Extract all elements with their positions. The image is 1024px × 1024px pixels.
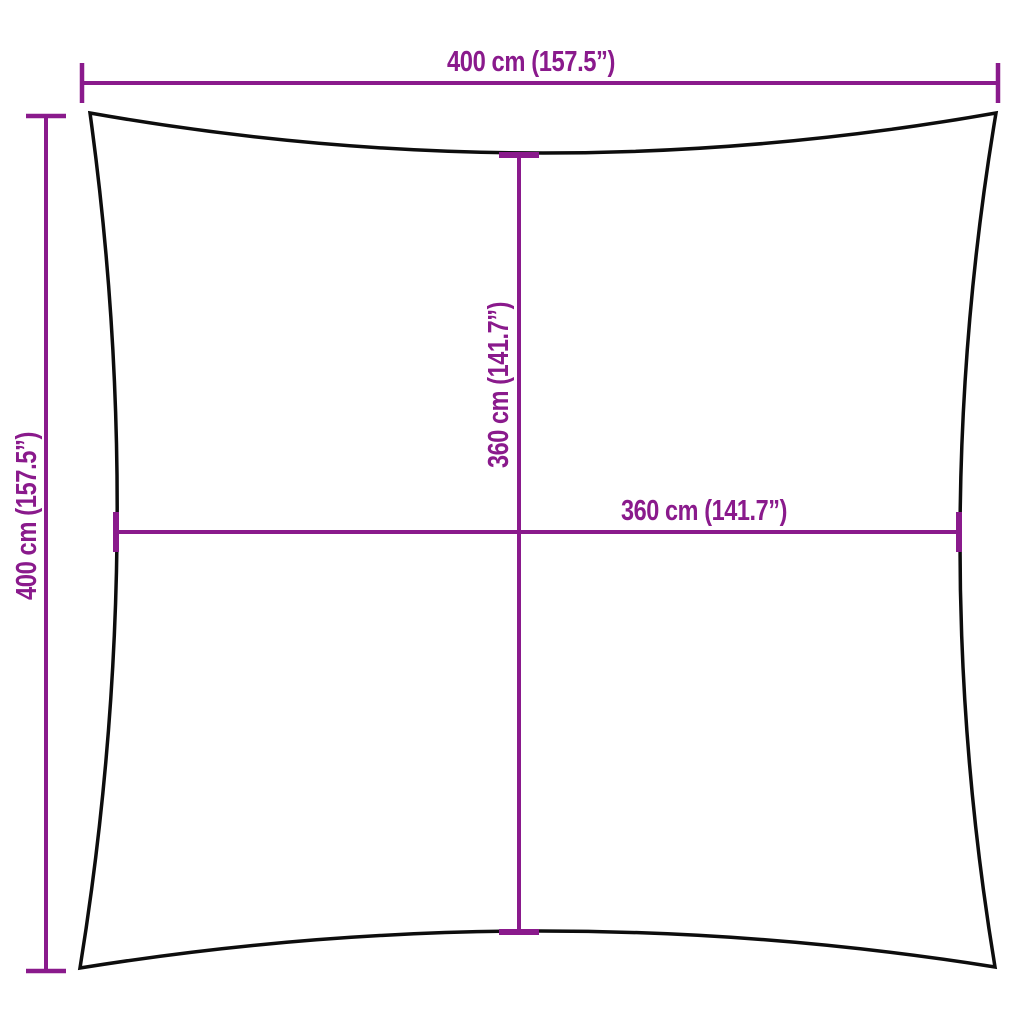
left-height-dimension: 400 cm (157.5”): [11, 116, 66, 971]
shade-sail-outline: [80, 113, 996, 968]
inner-width-label: 360 cm (141.7”): [621, 495, 787, 527]
inner-width-dimension: 360 cm (141.7”): [115, 495, 960, 552]
left-height-label: 400 cm (157.5”): [11, 432, 43, 600]
dimension-diagram: 400 cm (157.5”) 400 cm (157.5”) 360 cm (…: [0, 0, 1024, 1024]
diagram-canvas: 400 cm (157.5”) 400 cm (157.5”) 360 cm (…: [0, 0, 1024, 1024]
inner-height-label: 360 cm (141.7”): [483, 302, 515, 468]
top-width-label: 400 cm (157.5”): [447, 46, 615, 78]
inner-height-dimension: 360 cm (141.7”): [483, 154, 539, 933]
top-width-dimension: 400 cm (157.5”): [82, 46, 998, 103]
